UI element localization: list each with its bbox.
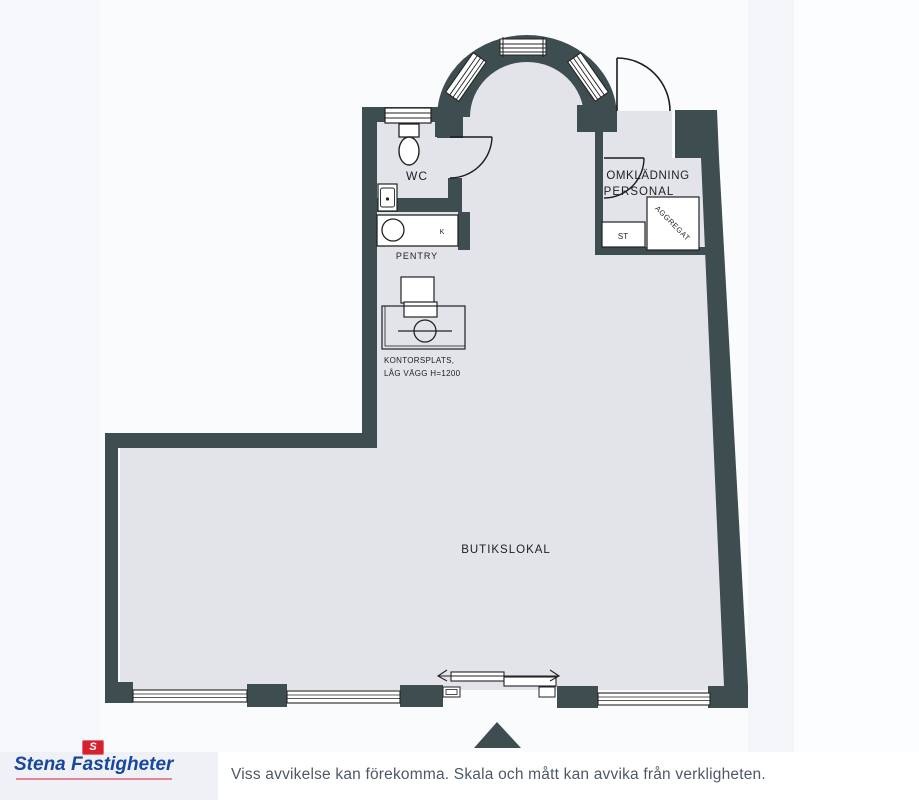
background-band	[0, 0, 100, 752]
background-band	[748, 0, 794, 752]
label-kontorsplats-1: KONTORSPLATS,	[384, 356, 454, 365]
label-kontorsplats-2: LÅG VÄGG H=1200	[384, 369, 461, 378]
label-st: ST	[618, 232, 628, 241]
wc-window	[385, 108, 431, 123]
facade-window-3	[598, 693, 710, 705]
sink-icon	[378, 184, 397, 211]
arch-window-top	[500, 37, 546, 57]
wall-pillar-4	[557, 686, 598, 708]
chair-seat	[404, 302, 437, 317]
wall-lower-left	[105, 433, 118, 703]
logo-underline	[16, 778, 172, 780]
wall-step	[105, 433, 377, 448]
wall-bottom-right-foot	[708, 686, 748, 708]
wall-wc-right-stub	[448, 178, 462, 198]
flag-letter: S	[89, 742, 96, 753]
chair-back	[401, 277, 434, 303]
wall-wc-right-top	[435, 120, 448, 137]
door-jamb-right	[539, 687, 555, 697]
wall-pentry-stub	[458, 212, 470, 250]
floorplan-page: WC PENTRY K OMKLÄDNING PERSONAL ST AGGRE…	[0, 0, 919, 800]
wall-wc-bottom	[362, 198, 462, 212]
wall-upper-left	[362, 107, 377, 448]
background-band	[794, 0, 919, 752]
stena-flag-icon: S	[82, 740, 104, 755]
label-pentry: PENTRY	[396, 251, 438, 261]
wall-pillar-3	[400, 685, 443, 707]
wall-top-right-corner	[675, 110, 719, 158]
disclaimer-text: Viss avvikelse kan förekomma. Skala och …	[231, 766, 766, 784]
label-wc: WC	[406, 169, 428, 183]
door-panel-right	[504, 677, 556, 686]
toilet-icon	[399, 124, 419, 165]
wall-pillar-2	[247, 684, 287, 707]
pentry-counter	[377, 215, 458, 246]
wall-arch-pier-right	[577, 105, 617, 132]
label-butikslokal: BUTIKSLOKAL	[461, 544, 551, 556]
wall-bottom-left-corner	[105, 682, 133, 703]
door-entrance-top-right	[617, 58, 670, 111]
stena-fastigheter-logo: S Stena Fastigheter	[14, 738, 176, 783]
facade-window-1	[133, 690, 247, 702]
label-pentry-k: K	[440, 229, 445, 236]
pentry-sink-icon	[382, 219, 404, 241]
label-omkladning-2: PERSONAL	[604, 186, 675, 198]
facade-window-2	[287, 691, 400, 703]
door-jamb-left	[443, 687, 460, 697]
entrance-arrow-icon	[474, 722, 521, 748]
logo-wordmark: Stena Fastigheter	[14, 754, 176, 776]
label-omkladning-1: OMKLÄDNING	[606, 170, 689, 182]
